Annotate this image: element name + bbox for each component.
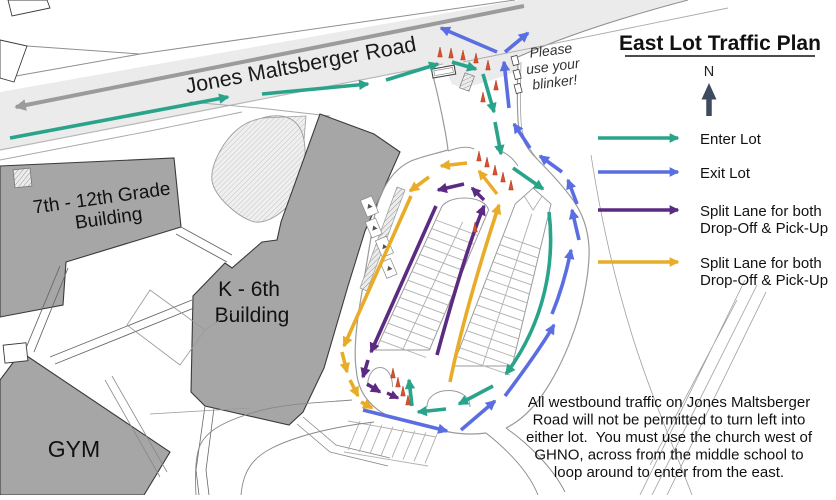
svg-text:Road will not be permitted to: Road will not be permitted to turn left … — [533, 412, 806, 429]
svg-text:Split Lane for both: Split Lane for both — [700, 203, 822, 220]
svg-text:Split Lane for both: Split Lane for both — [700, 255, 822, 272]
svg-text:N: N — [704, 64, 714, 80]
svg-text:K - 6th: K - 6th — [218, 278, 280, 301]
svg-text:All westbound traffic on Jones: All westbound traffic on Jones Maltsberg… — [528, 394, 810, 411]
svg-text:Drop-Off & Pick-Up: Drop-Off & Pick-Up — [700, 220, 828, 237]
svg-text:Enter Lot: Enter Lot — [700, 131, 762, 148]
svg-text:loop around to enter from the: loop around to enter from the east. — [554, 464, 784, 481]
svg-text:GHNO, across from the middle s: GHNO, across from the middle school to — [534, 447, 803, 464]
svg-text:Exit Lot: Exit Lot — [700, 165, 751, 182]
svg-text:GYM: GYM — [48, 436, 100, 462]
svg-text:East Lot Traffic Plan: East Lot Traffic Plan — [619, 32, 821, 55]
svg-text:Building: Building — [215, 304, 290, 327]
svg-text:either lot. You must use the: either lot. You must use the church west… — [526, 429, 813, 446]
svg-text:Drop-Off & Pick-Up: Drop-Off & Pick-Up — [700, 272, 828, 289]
